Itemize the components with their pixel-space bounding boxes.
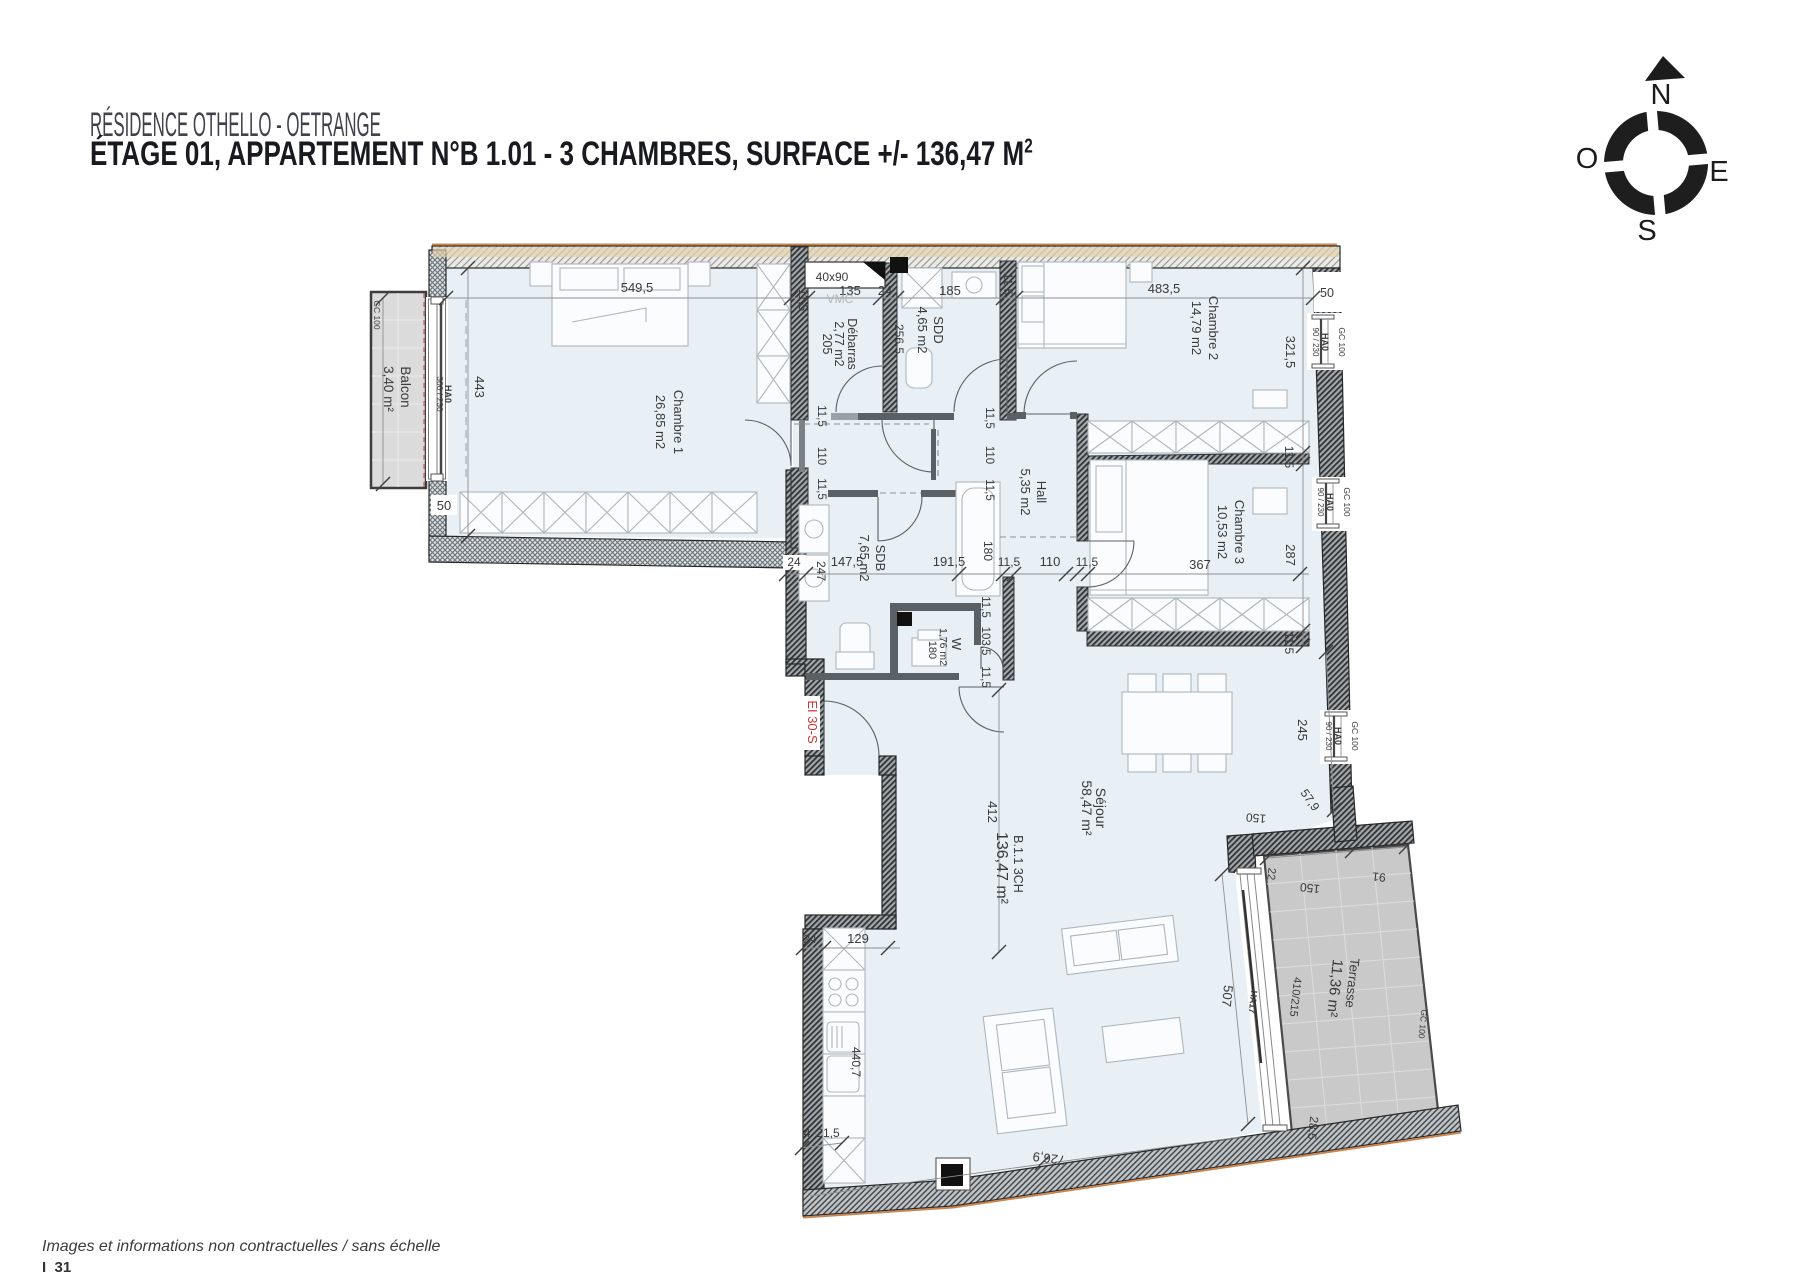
svg-text:O: O (1576, 143, 1599, 175)
svg-text:11,5: 11,5 (983, 407, 995, 429)
svg-text:103,5: 103,5 (979, 627, 991, 656)
svg-text:Chambre 1: Chambre 1 (671, 390, 686, 454)
svg-text:24: 24 (787, 555, 801, 569)
svg-text:11,5: 11,5 (1001, 273, 1015, 296)
svg-text:11,5: 11,5 (815, 478, 827, 500)
svg-text:443: 443 (472, 376, 487, 398)
svg-text:483,5: 483,5 (1148, 281, 1181, 296)
svg-text:GC 100: GC 100 (1342, 487, 1352, 517)
svg-text:150: 150 (1299, 880, 1321, 896)
svg-text:N: N (1651, 79, 1672, 111)
svg-text:10,53 m2: 10,53 m2 (1215, 505, 1230, 559)
svg-text:185: 185 (939, 283, 961, 298)
svg-text:W: W (949, 638, 964, 651)
svg-text:GC 100: GC 100 (1337, 327, 1347, 357)
svg-text:HA0: HA0 (1320, 333, 1330, 351)
svg-text:11,5: 11,5 (983, 479, 995, 501)
svg-text:180: 180 (926, 641, 938, 659)
svg-text:287: 287 (1283, 544, 1298, 566)
svg-text:321,5: 321,5 (1283, 336, 1298, 369)
svg-text:4,65 m2: 4,65 m2 (915, 307, 930, 354)
svg-text:367: 367 (1189, 557, 1211, 572)
svg-text:91: 91 (1371, 869, 1386, 884)
svg-text:28,5: 28,5 (1305, 1116, 1321, 1141)
svg-text:4: 4 (804, 1126, 811, 1140)
svg-text:90 / 230: 90 / 230 (1311, 328, 1320, 357)
svg-text:21,5: 21,5 (816, 1126, 840, 1140)
svg-text:Chambre 2: Chambre 2 (1206, 296, 1221, 360)
svg-text:24: 24 (878, 283, 892, 298)
svg-text:549,5: 549,5 (621, 280, 654, 295)
svg-text:E: E (1709, 156, 1728, 188)
svg-text:11,5: 11,5 (1282, 632, 1296, 655)
svg-text:247: 247 (814, 561, 828, 581)
svg-text:11,5: 11,5 (815, 405, 827, 427)
svg-text:14,79 m2: 14,79 m2 (1189, 301, 1204, 355)
svg-text:256,5: 256,5 (892, 324, 906, 354)
svg-text:Balcon: Balcon (398, 366, 413, 407)
svg-text:7,65 m2: 7,65 m2 (857, 535, 872, 582)
svg-text:SDB: SDB (873, 545, 888, 572)
svg-text:110: 110 (1040, 554, 1061, 569)
svg-text:205: 205 (820, 334, 834, 355)
svg-text:150: 150 (1245, 810, 1266, 826)
svg-text:Hall: Hall (1034, 481, 1049, 504)
svg-text:11,5: 11,5 (796, 289, 810, 312)
svg-text:VMC: VMC (827, 292, 854, 306)
svg-text:SDD: SDD (931, 316, 946, 343)
svg-text:50: 50 (437, 498, 451, 513)
svg-text:HA0: HA0 (1333, 727, 1343, 745)
svg-text:245: 245 (1295, 719, 1310, 741)
svg-text:11,5: 11,5 (979, 596, 991, 618)
svg-text:Chambre 3: Chambre 3 (1232, 500, 1247, 564)
svg-text:11,5: 11,5 (998, 555, 1021, 569)
svg-text:HA0: HA0 (443, 385, 453, 403)
svg-text:24: 24 (803, 932, 817, 946)
svg-text:136,47 m²: 136,47 m² (993, 832, 1010, 905)
svg-text:191,5: 191,5 (933, 554, 966, 569)
svg-text:58,47 m²: 58,47 m² (1079, 780, 1095, 836)
svg-text:129: 129 (847, 931, 869, 946)
svg-text:22: 22 (1264, 867, 1277, 880)
svg-text:GC 100: GC 100 (1350, 721, 1360, 751)
svg-text:5,35 m2: 5,35 m2 (1018, 469, 1033, 516)
svg-text:90 / 230: 90 / 230 (1316, 488, 1325, 517)
svg-text:3,40 m²: 3,40 m² (381, 366, 396, 412)
svg-text:110: 110 (815, 447, 827, 465)
svg-text:11,5: 11,5 (1282, 446, 1296, 469)
svg-text:412: 412 (985, 801, 1000, 823)
svg-text:26,85 m2: 26,85 m2 (653, 395, 668, 449)
svg-text:11,5: 11,5 (979, 666, 991, 688)
svg-text:110: 110 (983, 446, 995, 464)
svg-text:440,7: 440,7 (849, 1047, 863, 1077)
svg-text:S: S (1637, 215, 1656, 247)
svg-text:90 / 230: 90 / 230 (1324, 722, 1333, 751)
svg-text:50: 50 (1320, 286, 1334, 300)
svg-text:11,5: 11,5 (1076, 555, 1099, 569)
svg-text:EI 30-S: EI 30-S (805, 700, 820, 744)
svg-text:GC 100: GC 100 (372, 300, 382, 330)
svg-text:40x90: 40x90 (816, 270, 849, 284)
svg-text:180: 180 (981, 541, 995, 561)
svg-text:HA0: HA0 (1325, 493, 1335, 511)
svg-text:B.1.1 3CH: B.1.1 3CH (1011, 835, 1025, 893)
svg-text:Débarras: Débarras (845, 318, 859, 369)
svg-text:507: 507 (1219, 984, 1236, 1007)
